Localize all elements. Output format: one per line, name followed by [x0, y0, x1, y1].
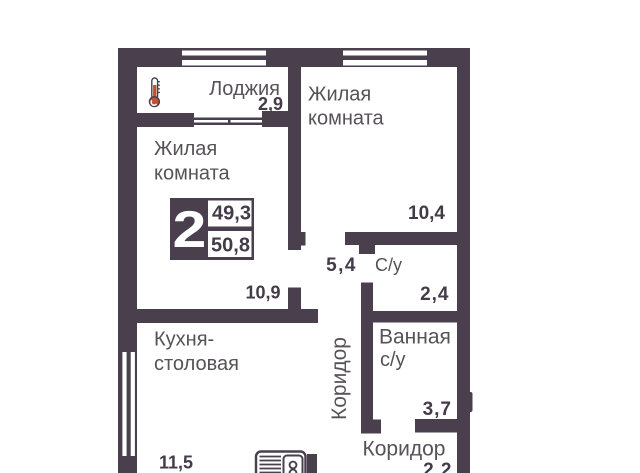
svg-text:2: 2	[173, 200, 207, 258]
svg-text:Коридор: Коридор	[328, 337, 351, 420]
svg-text:2,2: 2,2	[423, 460, 452, 473]
svg-text:с/у: с/у	[380, 349, 406, 371]
svg-text:11,5: 11,5	[159, 453, 193, 473]
svg-text:комната: комната	[308, 108, 385, 130]
svg-text:Жилая: Жилая	[308, 84, 371, 106]
svg-text:С/у: С/у	[375, 255, 402, 275]
svg-text:комната: комната	[154, 163, 231, 185]
svg-text:3,7: 3,7	[423, 399, 452, 420]
svg-text:Коридор: Коридор	[363, 438, 446, 461]
svg-text:50,8: 50,8	[211, 235, 250, 257]
svg-text:2,4: 2,4	[420, 284, 449, 305]
svg-text:5,4: 5,4	[326, 255, 357, 276]
svg-text:2,9: 2,9	[258, 94, 283, 114]
svg-text:столовая: столовая	[154, 353, 239, 375]
svg-text:10,4: 10,4	[408, 203, 445, 224]
svg-text:10,9: 10,9	[245, 283, 280, 303]
svg-text:Ванная: Ванная	[379, 326, 451, 349]
svg-text:Жилая: Жилая	[154, 138, 217, 160]
svg-text:49,3: 49,3	[212, 203, 251, 225]
svg-text:Кухня-: Кухня-	[154, 329, 214, 351]
